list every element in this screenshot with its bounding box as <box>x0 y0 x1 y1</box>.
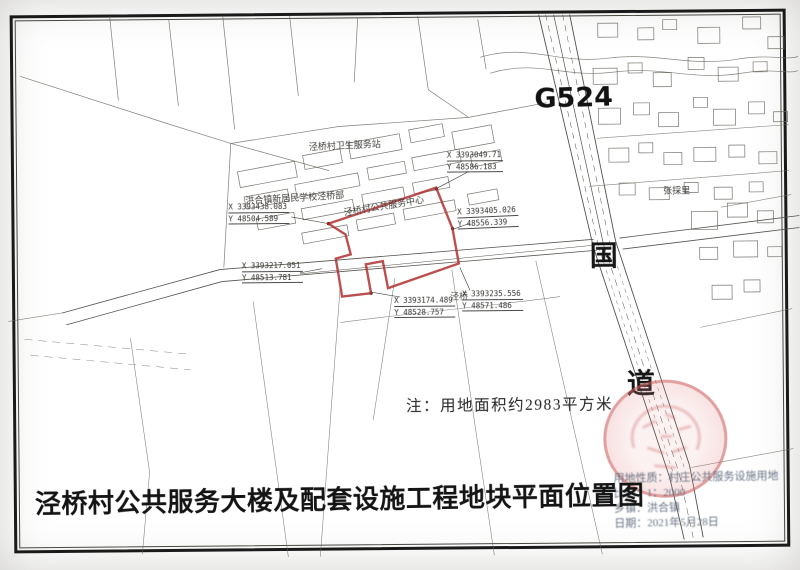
coordinate-marker: X 3393049.71 Y 48586.183 <box>447 150 503 172</box>
road-label-g524: G524 <box>534 81 613 114</box>
coordinate-marker: X 3393235.556 Y 48571.486 <box>462 289 523 312</box>
label-village: 张採里 <box>663 183 690 196</box>
field-lines <box>20 13 548 270</box>
coordinate-marker: X 3393438.083 Y 48504.589 <box>228 202 289 225</box>
stream-lines <box>480 50 798 78</box>
coordinate-marker: X 3393405.026 Y 48556.339 <box>457 205 519 230</box>
coordinate-marker: X 3393217.051 Y 48513.781 <box>242 261 303 284</box>
info-date: 日期：2021年5月28日 <box>614 514 779 532</box>
southeast-buildings <box>691 203 782 300</box>
school-buildings <box>236 114 511 253</box>
road-g524 <box>539 14 616 249</box>
road-label-guo: 国 <box>590 234 618 274</box>
coordinate-marker: X 3393174.489 Y 48528.757 <box>394 296 455 319</box>
scanned-map-page: G524 国 道 注：用地面积约2983平方米 洪合镇新居民学校泾桥部 泾桥村卫… <box>0 0 800 570</box>
scan-tilt-wrapper: G524 国 道 注：用地面积约2983平方米 洪合镇新居民学校泾桥部 泾桥村卫… <box>0 0 800 570</box>
area-note: 注：用地面积约2983平方米 <box>406 392 613 416</box>
